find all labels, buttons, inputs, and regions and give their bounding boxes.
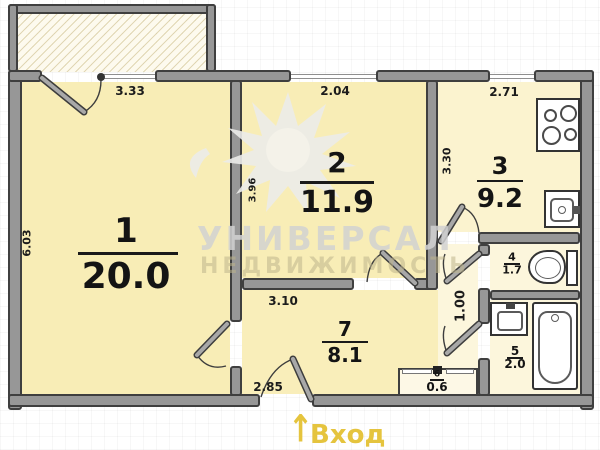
wall-right	[580, 70, 594, 410]
wall-corridor-lower	[478, 358, 490, 396]
window-kitchen	[490, 74, 534, 79]
dimension-room2-depth: 3.96	[248, 178, 259, 203]
room-1-area: 20.0	[82, 259, 171, 295]
room-2-area: 11.9	[300, 188, 374, 218]
balcony	[16, 12, 208, 72]
bathtub-icon	[532, 302, 578, 390]
entrance-label: Вход	[310, 420, 385, 450]
wall-top-segment	[8, 70, 42, 82]
room-3-fraction-line	[477, 180, 523, 182]
balcony-wall-right	[206, 4, 216, 72]
window-room1	[103, 74, 155, 79]
closet-sliding-door	[446, 369, 474, 374]
wall-room1-right-lower	[230, 366, 242, 396]
balcony-wall-top	[8, 4, 216, 14]
wall-bottom-segment	[8, 394, 260, 407]
room-7-area: 8.1	[327, 345, 362, 365]
toilet-icon	[566, 250, 578, 286]
closet-sliding-door	[402, 369, 432, 374]
stove-icon	[536, 98, 580, 152]
wall-corridor-mid	[478, 288, 490, 324]
kitchen-sink-icon	[544, 190, 580, 228]
room-4-number: 4	[508, 252, 516, 263]
dimension-kitchen-width: 2.71	[489, 85, 519, 99]
toilet-bowl-icon	[528, 250, 566, 284]
dimension-room1-width: 3.33	[115, 84, 145, 98]
watermark-title: УНИВЕРСАЛ	[197, 219, 454, 258]
watermark-subtitle: НЕДВИЖИМОСТЬ	[200, 254, 470, 279]
wall-room2-bottom	[242, 278, 354, 290]
dimension-room2-width: 2.04	[320, 84, 350, 98]
wall-top-segment	[155, 70, 291, 82]
room-2-fraction-line	[300, 181, 374, 184]
dimension-hall-top-width: 3.10	[268, 294, 298, 308]
dimension-room1-depth: 6.03	[21, 229, 34, 256]
room-1-fraction-line	[78, 252, 178, 255]
room-7-number: 7	[338, 319, 352, 339]
dimension-hall-bottom-width: 2.85	[253, 380, 283, 394]
room-3-number: 3	[492, 154, 509, 178]
wall-corridor-stub	[478, 244, 490, 256]
room-5-number: 5	[511, 345, 519, 357]
balcony-wall-left	[8, 4, 18, 72]
room-4-area: 1.7	[502, 265, 522, 276]
floor-plan: УНИВЕРСАЛ НЕДВИЖИМОСТЬ 1 20.0 2 11.9 3 9…	[0, 0, 600, 450]
room-6-area: 0.6	[426, 381, 447, 393]
dimension-kitchen-depth: 3.30	[441, 147, 454, 174]
wall-room1-right-upper	[230, 80, 242, 322]
room-2-number: 2	[327, 149, 346, 177]
window-room2	[291, 74, 376, 79]
bath-sink-icon	[490, 302, 528, 336]
room-3-area: 9.2	[477, 186, 523, 212]
dimension-corridor-width: 1.00	[454, 290, 469, 322]
room-1-number: 1	[114, 214, 138, 248]
room-5-area: 2.0	[504, 358, 525, 370]
wall-toilet-bath	[490, 290, 580, 300]
wall-kitchen-bottom	[478, 232, 580, 244]
wall-top-segment	[534, 70, 594, 82]
